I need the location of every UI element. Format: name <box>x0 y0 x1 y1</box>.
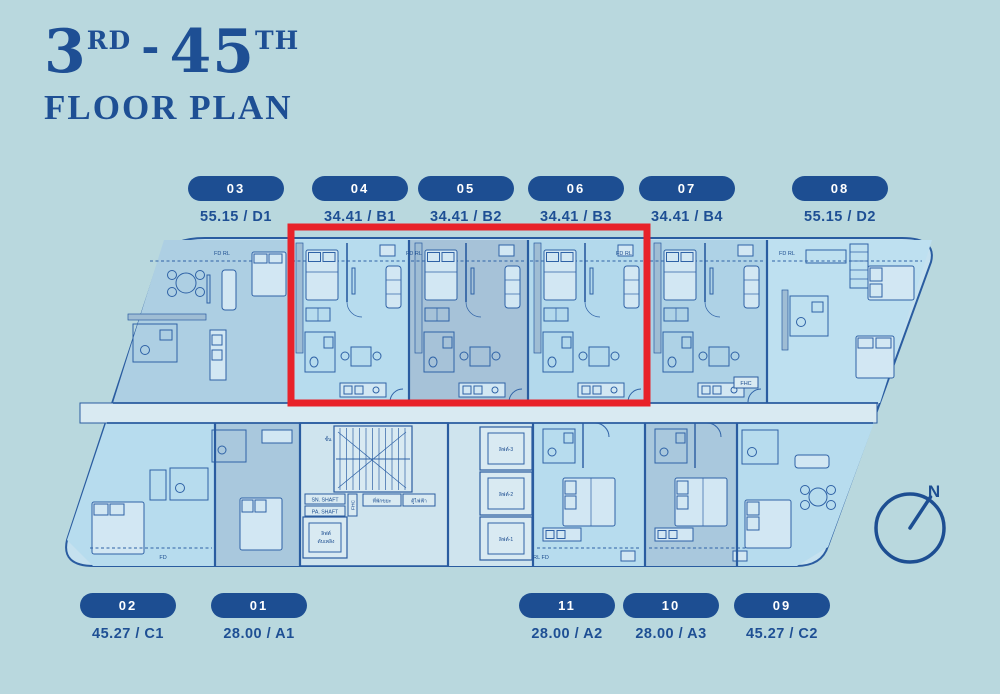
unit-area-label-09: 45.27 / C2 <box>717 626 847 642</box>
fire-lift-label-line2: ดับเพลิง <box>318 538 335 545</box>
compass-needle <box>910 497 931 528</box>
lift-1: ลิฟต์-1 <box>480 517 532 560</box>
unit-badge-09: 09 <box>734 593 830 618</box>
rl-fd-label: RL FD <box>533 555 549 561</box>
fd-rl-label-4: FD RL <box>779 251 795 257</box>
fire-lift-label-line1: ลิฟต์ <box>321 530 331 537</box>
unit-badge-03: 03 <box>188 176 284 201</box>
fhc-label: FHC <box>351 500 357 510</box>
fd-rl-label-2: FD RL <box>406 251 422 257</box>
electrical-label: ตู้ไฟฟ้า <box>411 498 427 505</box>
unit-area-label-03: 55.15 / D1 <box>171 209 301 225</box>
unit-area-label-02: 45.27 / C1 <box>63 626 193 642</box>
fd-rl-label-1: FD RL <box>214 251 230 257</box>
unit-area-label-07: 34.41 / B4 <box>622 209 752 225</box>
unit-badge-06: 06 <box>528 176 624 201</box>
pa-shaft-label: PA. SHAFT <box>312 510 339 516</box>
fhc-label-2: FHC <box>740 381 751 387</box>
lift-1-label: ลิฟต์-1 <box>499 536 514 543</box>
unit-badge-01: 01 <box>211 593 307 618</box>
unit-badge-08: 08 <box>792 176 888 201</box>
garbage-room-label: ที่พักขยะ <box>373 498 392 505</box>
unit-area-label-08: 55.15 / D2 <box>775 209 905 225</box>
compass: N <box>876 482 944 562</box>
floor-plan-canvas: ชั้น SN. SHAFT PA. SHAFT FHC ที่พักขยะ ต… <box>0 0 1000 694</box>
floor-plan-page: 3 RD - 45 TH FLOOR PLAN <box>0 0 1000 694</box>
lift-3-label: ลิฟต์-3 <box>499 446 514 453</box>
fd-rl-label-3: FD RL <box>616 251 632 257</box>
unit-badge-10: 10 <box>623 593 719 618</box>
lift-3: ลิฟต์-3 <box>480 427 532 470</box>
unit-badge-11: 11 <box>519 593 615 618</box>
compass-north-label: N <box>928 482 940 501</box>
unit-badge-07: 07 <box>639 176 735 201</box>
unit-area-label-01: 28.00 / A1 <box>194 626 324 642</box>
unit-badge-05: 05 <box>418 176 514 201</box>
unit-badge-04: 04 <box>312 176 408 201</box>
lift-2-label: ลิฟต์-2 <box>499 491 514 498</box>
unit-badge-02: 02 <box>80 593 176 618</box>
fd-label: FD <box>159 555 166 561</box>
sn-shaft-label: SN. SHAFT <box>311 498 339 504</box>
lift-2: ลิฟต์-2 <box>480 472 532 515</box>
